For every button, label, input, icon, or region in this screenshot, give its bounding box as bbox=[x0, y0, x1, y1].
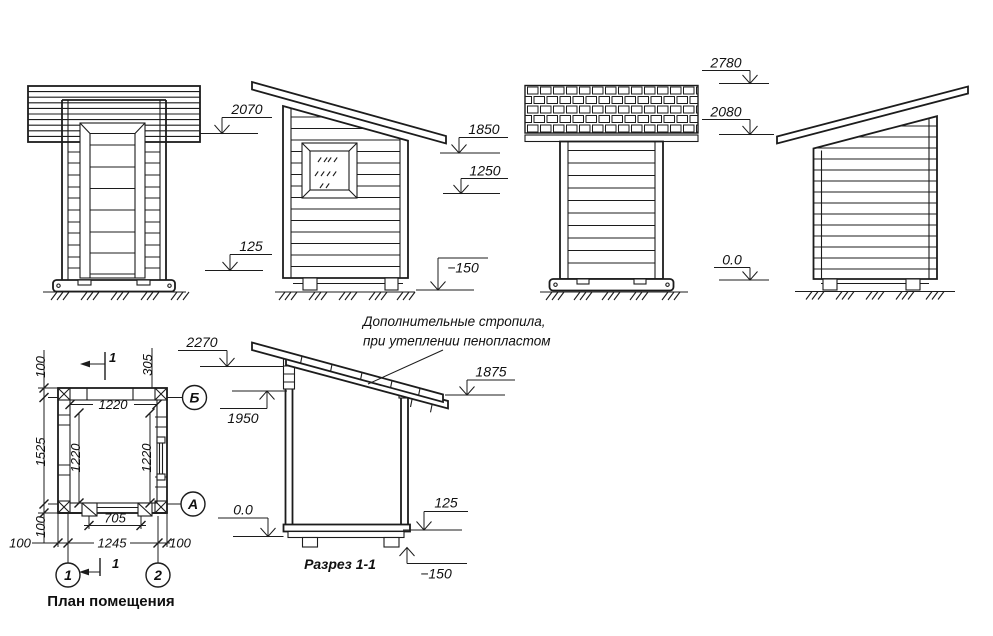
axis-row-top: Б bbox=[167, 386, 207, 410]
blueprint-page: 2070 125 1850 bbox=[0, 0, 993, 636]
level-mark-eaves: 1850 bbox=[440, 121, 508, 153]
level-value: 2780 bbox=[709, 55, 741, 71]
level-value: 125 bbox=[239, 238, 263, 254]
level-value: 1875 bbox=[475, 364, 506, 380]
blueprint-canvas: 2070 125 1850 bbox=[0, 0, 993, 636]
level-mark-eaves: 1875 bbox=[445, 364, 515, 396]
level-mark-floor: 125 bbox=[403, 495, 468, 531]
section-cut-bottom: 1 bbox=[79, 556, 119, 576]
rafters bbox=[252, 343, 448, 413]
level-mark-wall-top: 1950 bbox=[220, 391, 287, 426]
level-value: 125 bbox=[434, 495, 458, 511]
level-mark-ground: −150 bbox=[416, 258, 488, 290]
dim-margin-left: 100 bbox=[9, 536, 31, 551]
note-line1: Дополнительные стропила, bbox=[361, 314, 546, 329]
axis-label: А bbox=[187, 496, 198, 512]
level-mark-plinth: 125 bbox=[205, 238, 272, 271]
dim-inner-left: 1220 bbox=[68, 443, 83, 473]
dim-door-width: 705 bbox=[104, 511, 126, 526]
dim-width-axes: 1245 bbox=[98, 536, 128, 551]
cut-label: 1 bbox=[109, 350, 116, 365]
dim-height-axes: 1525 bbox=[33, 437, 48, 467]
level-value: 2270 bbox=[185, 334, 217, 350]
roof-slope bbox=[252, 82, 446, 144]
level-value: 2070 bbox=[230, 101, 262, 117]
dim-offset-top: 100 bbox=[33, 355, 48, 377]
elevation-front: 2070 125 bbox=[28, 86, 272, 300]
level-value: 1850 bbox=[468, 121, 499, 137]
axis-col-left: 1 bbox=[56, 513, 80, 587]
fascia bbox=[525, 135, 698, 142]
door bbox=[80, 123, 145, 278]
window bbox=[302, 143, 357, 198]
elevation-side-plain bbox=[777, 87, 968, 300]
level-mark-roof: 2070 bbox=[200, 101, 272, 134]
level-value: −150 bbox=[447, 260, 479, 276]
level-value: 0.0 bbox=[233, 502, 253, 518]
dim-offset-bottom: 100 bbox=[33, 515, 48, 537]
level-value: 1250 bbox=[469, 163, 500, 179]
plan-title: План помещения bbox=[47, 593, 174, 610]
level-mark-eaves: 2080 bbox=[702, 104, 774, 135]
level-value: 1950 bbox=[227, 410, 258, 426]
axis-col-right: 2 bbox=[146, 516, 170, 587]
elevation-side-window: 1850 1250 −150 bbox=[252, 82, 508, 300]
elevation-rear: 2780 2080 0.0 bbox=[525, 55, 774, 301]
leader-line bbox=[368, 350, 443, 384]
dim-roof-edge: 305 bbox=[140, 353, 155, 375]
dim-margin-right: 100 bbox=[169, 536, 191, 551]
dim-inner-right: 1220 bbox=[139, 443, 154, 473]
dim-inner-width: 1220 bbox=[99, 397, 129, 412]
level-mark-ridge: 2780 bbox=[702, 55, 769, 84]
section-title: Разрез 1-1 bbox=[304, 556, 376, 572]
level-mark-zero: 0.0 bbox=[714, 252, 769, 281]
axis-label: 1 bbox=[64, 567, 72, 583]
level-mark-window: 1250 bbox=[443, 163, 508, 194]
level-value: 0.0 bbox=[722, 252, 742, 268]
cut-label: 1 bbox=[112, 556, 119, 571]
skid-foundation bbox=[550, 279, 674, 291]
axis-row-bottom: А bbox=[167, 492, 205, 516]
level-value: −150 bbox=[420, 566, 452, 582]
level-mark-zero: 0.0 bbox=[218, 502, 284, 537]
shingle-roof bbox=[525, 86, 698, 134]
section-view: 2270 1950 1875 0.0 125 −150 bbox=[178, 314, 550, 582]
rafter-note: Дополнительные стропила, при утеплении п… bbox=[361, 314, 550, 384]
right-wall-window bbox=[157, 437, 165, 480]
axis-label: Б bbox=[190, 390, 200, 406]
section-cut-top: 1 bbox=[80, 350, 116, 380]
roof-slope bbox=[777, 87, 968, 144]
level-value: 2080 bbox=[709, 104, 741, 120]
floor-plan: 100 1525 100 1220 1220 1220 705 1245 100… bbox=[9, 348, 206, 610]
skid-foundation bbox=[53, 280, 175, 292]
axis-label: 2 bbox=[153, 567, 162, 583]
note-line2: при утеплении пенопластом bbox=[363, 334, 550, 349]
level-mark-ground: −150 bbox=[400, 548, 468, 582]
